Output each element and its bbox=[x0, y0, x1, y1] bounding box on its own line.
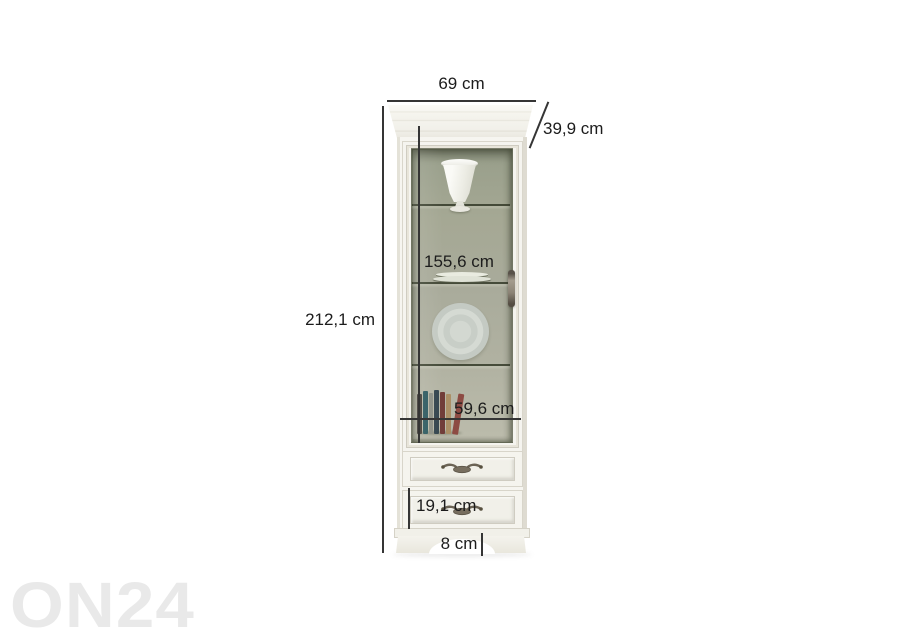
dimension-label-height: 212,1 cm bbox=[290, 310, 375, 330]
book-spine bbox=[423, 391, 428, 434]
dimension-line-plinth-height bbox=[481, 533, 483, 556]
cabinet-crown-molding bbox=[388, 105, 533, 138]
product-dimension-diagram: ON24 bbox=[0, 0, 900, 644]
dimension-label-plinth-height: 8 cm bbox=[438, 534, 480, 554]
dimension-label-drawer-height: 19,1 cm bbox=[416, 496, 476, 516]
glass-shelf-3 bbox=[412, 364, 510, 366]
display-vase-foot bbox=[450, 206, 470, 212]
dimension-label-glass-door-height: 155,6 cm bbox=[424, 252, 494, 272]
dimension-line-height bbox=[382, 106, 384, 553]
watermark-logo: ON24 bbox=[10, 568, 195, 642]
book-spine bbox=[446, 394, 451, 434]
book-spine bbox=[440, 392, 445, 434]
glass-shelf-2 bbox=[412, 282, 510, 284]
book-spine bbox=[434, 390, 439, 434]
dimension-line-glass-door-height bbox=[418, 126, 420, 443]
book-spine bbox=[429, 393, 433, 434]
display-plate bbox=[432, 303, 489, 360]
dimension-label-width: 69 cm bbox=[387, 74, 536, 94]
dimension-line-drawer-height bbox=[408, 488, 410, 529]
display-plate-stack bbox=[433, 276, 491, 282]
dimension-label-depth: 39,9 cm bbox=[543, 119, 603, 139]
door-handle bbox=[508, 270, 515, 307]
dimension-label-interior-width: 59,6 cm bbox=[454, 399, 514, 419]
dimension-line-width bbox=[387, 100, 536, 102]
drawer-upper-handle bbox=[440, 462, 484, 475]
drawer-upper bbox=[402, 451, 523, 487]
